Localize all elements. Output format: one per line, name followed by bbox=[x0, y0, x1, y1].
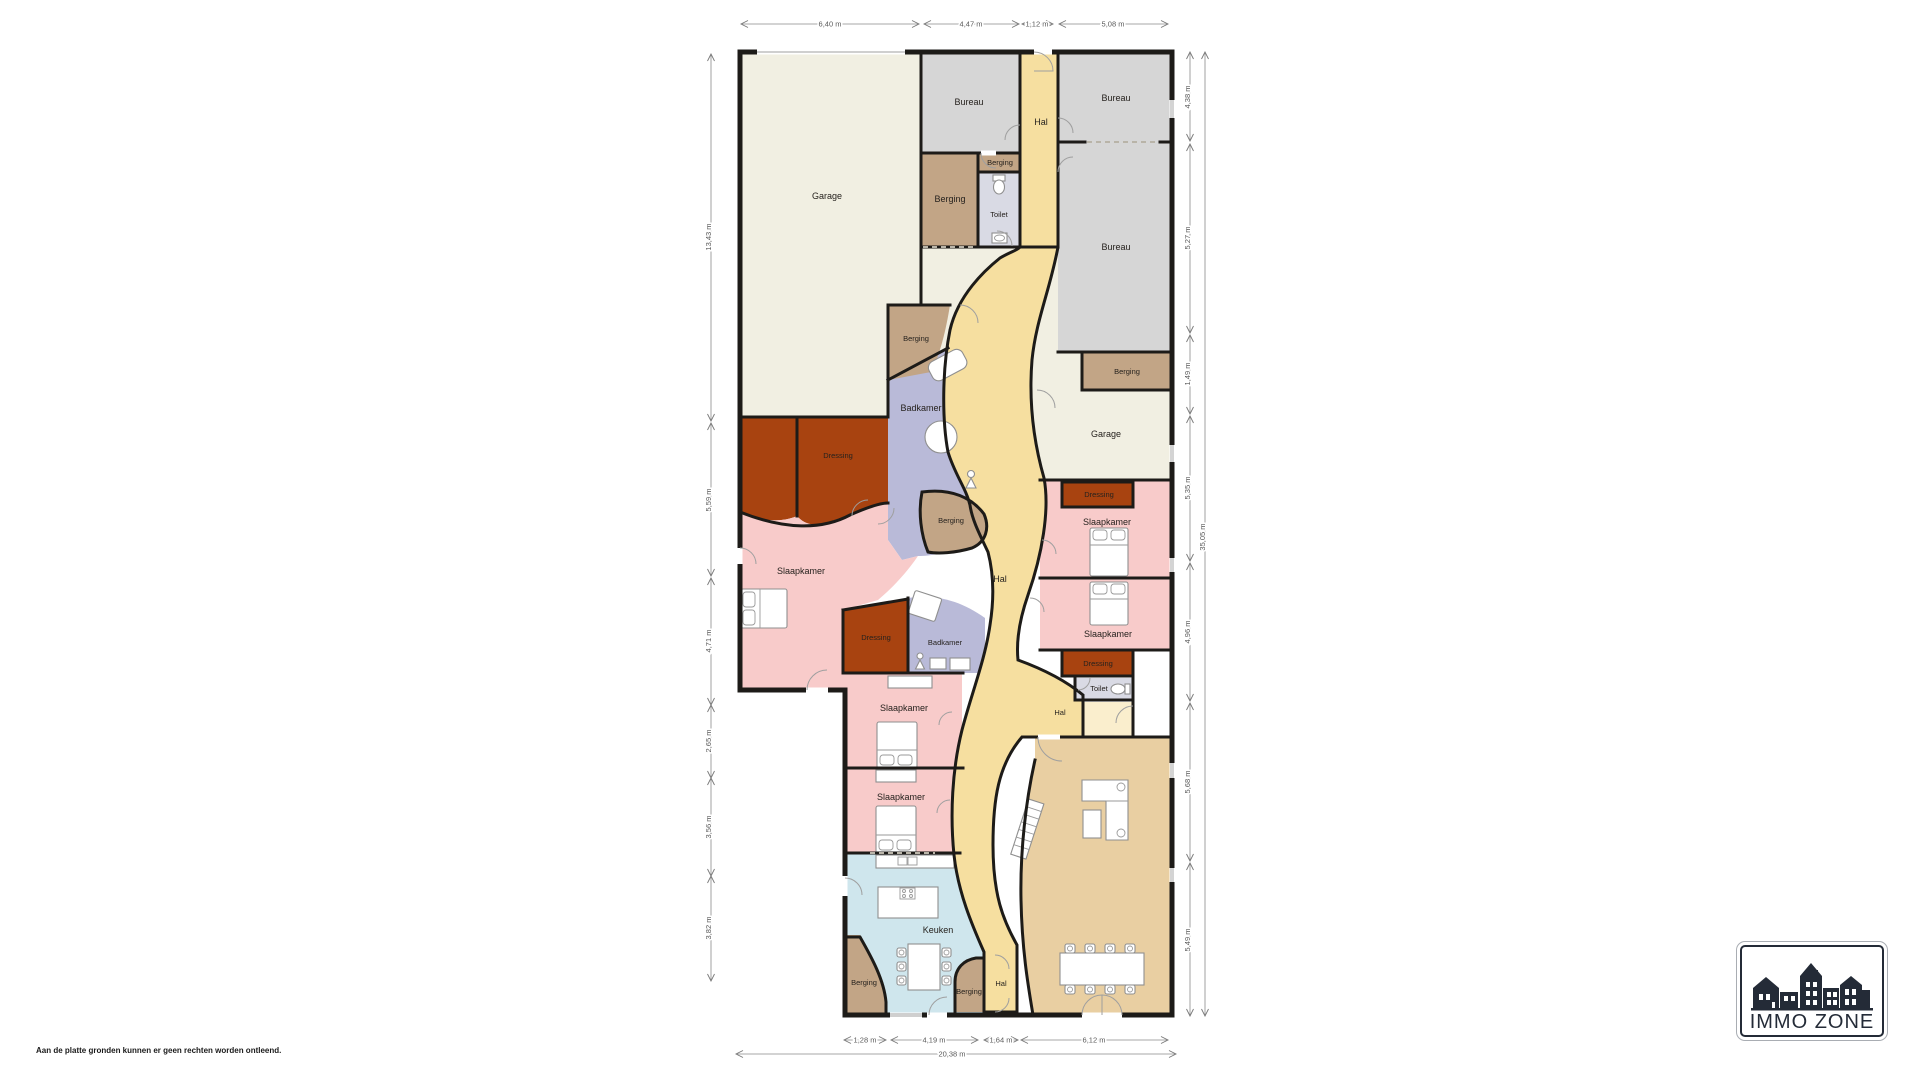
immo-zone-logo: IMMO ZONE bbox=[1736, 941, 1888, 1041]
bed-1 bbox=[741, 589, 787, 628]
dim-label-bottom: 6,12 m bbox=[1083, 1036, 1106, 1045]
room-label: Berging bbox=[851, 978, 877, 987]
bed-2 bbox=[1090, 528, 1128, 576]
room-label: Toilet bbox=[1090, 684, 1108, 693]
immo-zone-logo-frame: IMMO ZONE bbox=[1740, 945, 1884, 1037]
shower-round bbox=[925, 421, 957, 453]
kitchen-island bbox=[878, 887, 938, 918]
dim-label-right-total: 35,05 m bbox=[1198, 523, 1207, 550]
room-label: Garage bbox=[812, 191, 842, 201]
dim-label-left: 3,56 m bbox=[704, 816, 713, 839]
dim-label-bottom: 1,64 m bbox=[990, 1036, 1013, 1045]
room-label: Keuken bbox=[923, 925, 954, 935]
room-label: Toilet bbox=[990, 210, 1008, 219]
dim-label-bottom: 4,19 m bbox=[923, 1036, 946, 1045]
floorplan-page: Garage Bureau Hal Bureau Berging Berging… bbox=[0, 0, 1920, 1080]
room-dressing-1a bbox=[740, 417, 797, 520]
room-label: Dressing bbox=[823, 451, 853, 460]
dim-label-right: 4,96 m bbox=[1183, 621, 1192, 644]
dim-label-left: 3,82 m bbox=[704, 917, 713, 940]
kitchen-table bbox=[897, 944, 951, 990]
dim-label-right: 1,49 m bbox=[1183, 363, 1192, 386]
room-label: Hal bbox=[1054, 708, 1066, 717]
dim-label-right: 5,27 m bbox=[1183, 227, 1192, 250]
dim-label-left: 13,43 m bbox=[704, 223, 713, 250]
room-label: Slaapkamer bbox=[1084, 629, 1132, 639]
houses-skyline-icon bbox=[1751, 958, 1873, 1012]
dim-label-right: 5,35 m bbox=[1183, 477, 1192, 500]
kitchen-counter bbox=[876, 855, 954, 868]
room-label: Berging bbox=[956, 987, 982, 996]
dim-label-right: 5,68 m bbox=[1183, 771, 1192, 794]
room-label: Berging bbox=[903, 334, 929, 343]
room-label: Dressing bbox=[1084, 490, 1114, 499]
room-label: Bureau bbox=[1101, 93, 1130, 103]
room-label: Slaapkamer bbox=[880, 703, 928, 713]
dim-label-top: 6,40 m bbox=[819, 20, 842, 29]
disclaimer-text: Aan de platte gronden kunnen er geen rec… bbox=[36, 1046, 281, 1055]
room-label: Garage bbox=[1091, 429, 1121, 439]
room-label: Slaapkamer bbox=[1083, 517, 1131, 527]
room-label: Bureau bbox=[954, 97, 983, 107]
room-label: Bureau bbox=[1101, 242, 1130, 252]
toilet-b-fixture bbox=[1111, 684, 1130, 694]
dim-label-left: 5,59 m bbox=[704, 489, 713, 512]
room-label: Hal bbox=[1034, 117, 1048, 127]
room-label: Hal bbox=[995, 979, 1007, 988]
dim-label-right: 5,49 m bbox=[1183, 929, 1192, 952]
dim-label-right: 4,38 m bbox=[1183, 86, 1192, 109]
room-label: Badkamer bbox=[900, 403, 941, 413]
dim-label-top: 5,08 m bbox=[1102, 20, 1125, 29]
dim-label-top: 1,12 m bbox=[1026, 20, 1049, 29]
bed-5 bbox=[876, 806, 916, 853]
dim-label-top: 4,47 m bbox=[960, 20, 983, 29]
room-label: Hal bbox=[993, 574, 1007, 584]
floorplan-drawing: Garage Bureau Hal Bureau Berging Berging… bbox=[0, 0, 1920, 1080]
dim-label-bottom-total: 20,38 m bbox=[938, 1050, 965, 1059]
room-label: Berging bbox=[1114, 367, 1140, 376]
dim-label-bottom: 1,28 m bbox=[854, 1036, 877, 1045]
room-label: Slaapkamer bbox=[777, 566, 825, 576]
room-label: Badkamer bbox=[928, 638, 963, 647]
room-label: Berging bbox=[938, 516, 964, 525]
bed-4 bbox=[877, 722, 917, 768]
closet-2 bbox=[876, 770, 916, 782]
room-label: Slaapkamer bbox=[877, 792, 925, 802]
dim-label-left: 2,65 m bbox=[704, 730, 713, 753]
dim-label-left: 4,71 m bbox=[704, 630, 713, 653]
room-label: Berging bbox=[987, 158, 1013, 167]
room-label: Dressing bbox=[1083, 659, 1113, 668]
logo-title: IMMO ZONE bbox=[1750, 1012, 1875, 1032]
closet-1 bbox=[888, 676, 932, 688]
room-label: Dressing bbox=[861, 633, 891, 642]
room-label: Berging bbox=[934, 194, 965, 204]
bed-3 bbox=[1090, 582, 1128, 625]
